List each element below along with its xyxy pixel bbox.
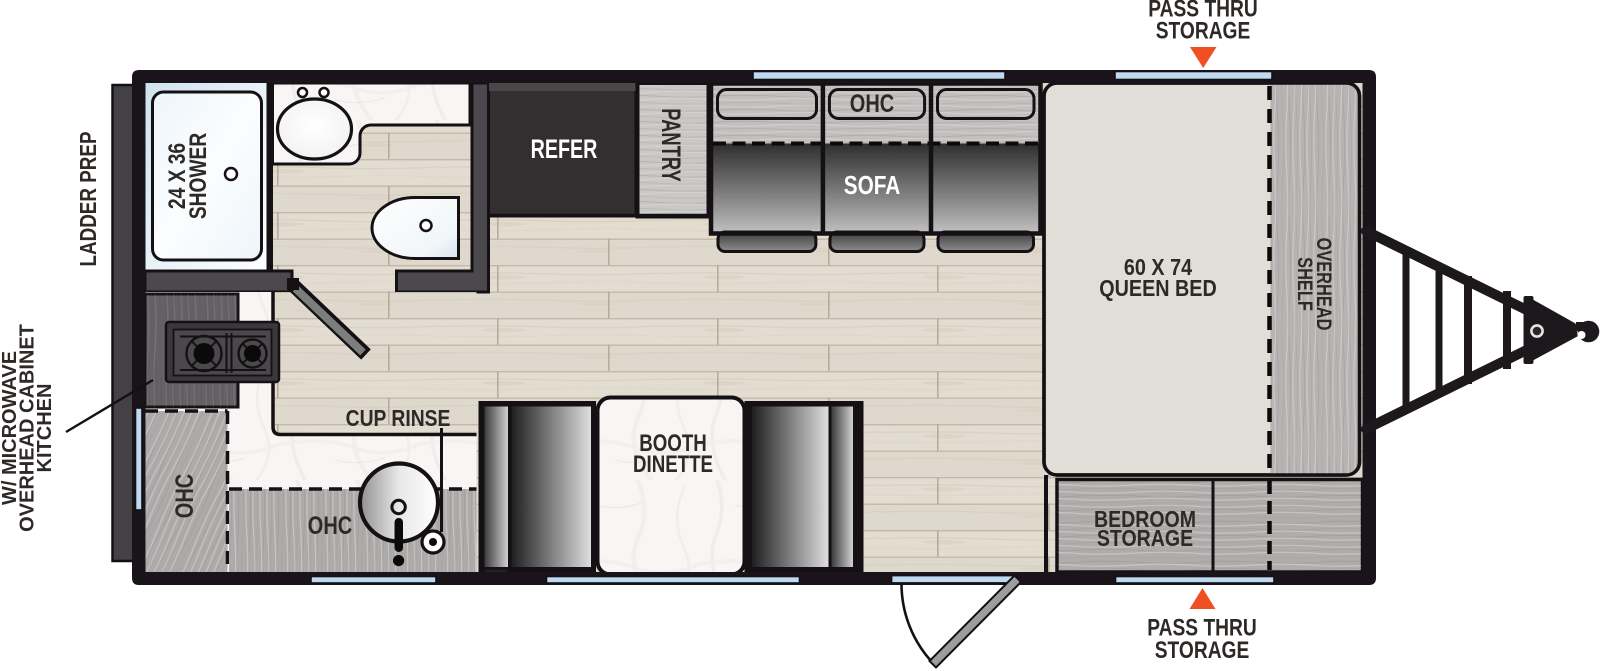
svg-text:SOFA: SOFA	[844, 171, 901, 200]
svg-text:OHC: OHC	[850, 90, 894, 118]
svg-text:PASS THRUSTORAGE: PASS THRUSTORAGE	[1148, 0, 1257, 44]
svg-text:REFER: REFER	[531, 135, 598, 165]
svg-text:PANTRY: PANTRY	[656, 108, 686, 182]
svg-text:PASS THRUSTORAGE: PASS THRUSTORAGE	[1147, 613, 1256, 663]
svg-text:OHC: OHC	[171, 474, 199, 518]
svg-text:BEDROOMSTORAGE: BEDROOMSTORAGE	[1094, 507, 1196, 552]
svg-text:CUP RINSE: CUP RINSE	[346, 407, 451, 432]
svg-text:BOOTHDINETTE: BOOTHDINETTE	[633, 430, 713, 478]
svg-text:OHC: OHC	[308, 512, 352, 540]
svg-text:24 X 36SHOWER: 24 X 36SHOWER	[163, 133, 212, 220]
svg-text:LADDER PREP: LADDER PREP	[76, 131, 101, 266]
